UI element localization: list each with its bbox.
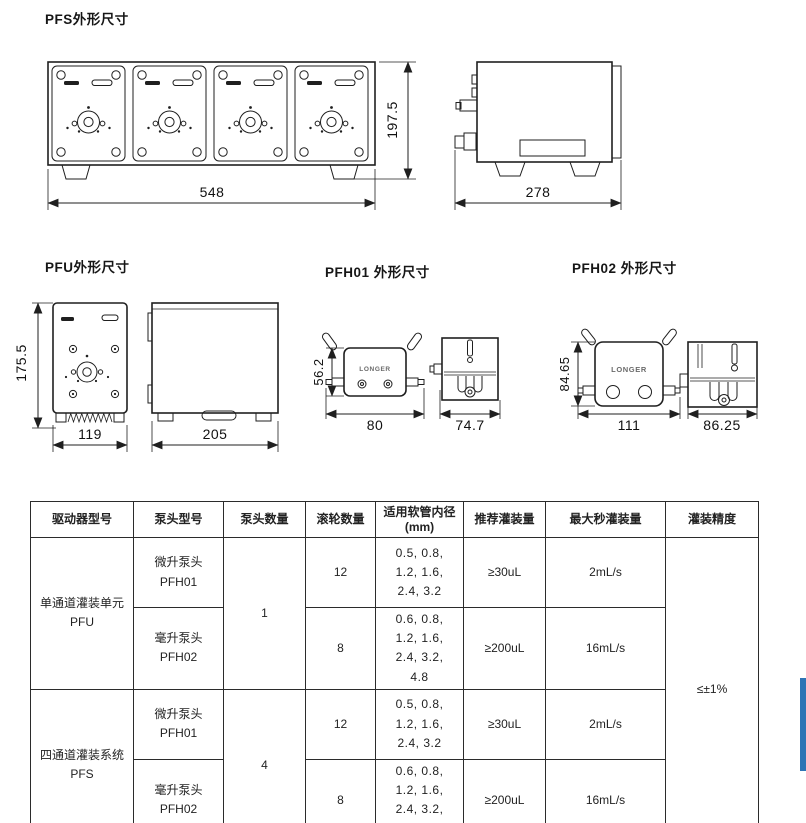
cell-head-count: 1: [224, 538, 306, 690]
cell-driver-pfu: 单通道灌装单元 PFU: [31, 538, 134, 690]
pfu-width-dim-label: 119: [78, 426, 102, 442]
pfh02-section-title: PFH02 外形尺寸: [572, 257, 677, 277]
pfu-vent-fins: [68, 414, 112, 423]
cell-max-fill-per-sec: 16mL/s: [546, 759, 666, 823]
col-header-pump-head-count: 泵头数量: [224, 502, 306, 538]
cell-tubing-id: 0.5, 0.8, 1.2, 1.6, 2.4, 3.2: [376, 538, 464, 608]
cell-rollers: 12: [306, 538, 376, 608]
datasheet-page: PFS外形尺寸: [0, 0, 806, 823]
clamp-lever-right: [661, 328, 678, 346]
cell-tubing-id: 0.5, 0.8, 1.2, 1.6, 2.4, 3.2: [376, 689, 464, 759]
pfh02-logo-text: LONGER: [611, 365, 647, 374]
clamp-lever-left: [580, 328, 597, 346]
cell-head-pfh01: 微升泵头 PFH01: [134, 538, 224, 608]
pfu-depth-dim-label: 205: [203, 426, 228, 442]
pfh01-width-dim-label: 80: [367, 417, 384, 433]
pfs-depth-dim-label: 278: [526, 184, 551, 200]
cell-recommended-fill: ≥30uL: [464, 689, 546, 759]
col-header-roller-count: 滚轮数量: [306, 502, 376, 538]
cell-max-fill-per-sec: 16mL/s: [546, 608, 666, 690]
pfu-section-title: PFU外形尺寸: [45, 256, 130, 276]
cell-head-pfh02: 毫升泵头 PFH02: [134, 608, 224, 690]
col-header-max-fill-per-sec: 最大秒灌装量: [546, 502, 666, 538]
table-header-row: 驱动器型号 泵头型号 泵头数量 滚轮数量 适用软管内径 (mm) 推荐灌装量 最…: [31, 502, 759, 538]
pfu-roller-hub: [65, 355, 109, 382]
table-row: 四通道灌装系统 PFS 微升泵头 PFH01 4 12 0.5, 0.8, 1.…: [31, 689, 759, 759]
clamp-lever-right: [406, 332, 423, 351]
pfh02-height-dim-label: 84.65: [557, 356, 572, 391]
side-slot: [520, 140, 585, 156]
cell-head-count: 4: [224, 689, 306, 823]
table-row: 毫升泵头 PFH02 8 0.6, 0.8, 1.2, 1.6, 2.4, 3.…: [31, 608, 759, 690]
pfs-side-right-foot: [570, 162, 600, 176]
pfs-side-left-foot: [495, 162, 525, 176]
col-header-tubing-id: 适用软管内径 (mm): [376, 502, 464, 538]
pfh01-logo-text: LONGER: [359, 366, 390, 373]
pfh01-tube-fittings: [326, 378, 424, 386]
cell-tubing-id: 0.6, 0.8, 1.2, 1.6, 2.4, 3.2, 4.8: [376, 608, 464, 690]
cell-recommended-fill: ≥200uL: [464, 608, 546, 690]
cell-max-fill-per-sec: 2mL/s: [546, 538, 666, 608]
col-header-fill-accuracy: 灌装精度: [666, 502, 759, 538]
col-header-pump-head-model: 泵头型号: [134, 502, 224, 538]
pfs-front-view-drawing: 548 197.5: [42, 50, 427, 228]
cell-recommended-fill: ≥30uL: [464, 538, 546, 608]
pfs-section-title: PFS外形尺寸: [45, 8, 129, 28]
pfu-height-dim-label: 175.5: [13, 344, 29, 382]
cell-recommended-fill: ≥200uL: [464, 759, 546, 823]
cell-max-fill-per-sec: 2mL/s: [546, 689, 666, 759]
cell-rollers: 8: [306, 759, 376, 823]
pfh01-section-title: PFH01 外形尺寸: [325, 261, 430, 281]
pfh02-depth-dim-label: 86.25: [703, 417, 741, 433]
pfs-side-view-drawing: 278: [445, 50, 655, 228]
pfs-left-foot: [62, 165, 90, 179]
col-header-driver-model: 驱动器型号: [31, 502, 134, 538]
pfs-right-foot: [330, 165, 358, 179]
pfh01-height-dim-label: 56.2: [311, 358, 326, 385]
cell-rollers: 8: [306, 608, 376, 690]
cell-head-pfh01: 微升泵头 PFH01: [134, 689, 224, 759]
vertical-scrollbar-thumb[interactable]: [800, 678, 806, 771]
pfh01-drawings: LONGER 56.2 80 74.7: [312, 326, 562, 446]
pfh02-tube-fittings: [578, 386, 680, 395]
cell-rollers: 12: [306, 689, 376, 759]
cell-fill-accuracy: ≤±1%: [666, 538, 759, 823]
pfs-height-dim-label: 197.5: [384, 101, 400, 139]
col-header-recommended-fill: 推荐灌装量: [464, 502, 546, 538]
pfh01-depth-dim-label: 74.7: [455, 417, 484, 433]
cell-tubing-id: 0.6, 0.8, 1.2, 1.6, 2.4, 3.2, 4.8: [376, 759, 464, 823]
pfh02-drawings: LONGER 84.65 111 86.: [560, 326, 806, 446]
pfs-width-dim-label: 548: [200, 184, 225, 200]
cell-head-pfh02: 毫升泵头 PFH02: [134, 759, 224, 823]
table-row: 单通道灌装单元 PFU 微升泵头 PFH01 1 12 0.5, 0.8, 1.…: [31, 538, 759, 608]
pfu-drawings: 175.5 119 205: [16, 290, 301, 465]
cable-gland: [464, 133, 476, 150]
cell-driver-pfs: 四通道灌装系统 PFS: [31, 689, 134, 823]
specification-table: 驱动器型号 泵头型号 泵头数量 滚轮数量 适用软管内径 (mm) 推荐灌装量 最…: [30, 501, 759, 823]
table-row: 毫升泵头 PFH02 8 0.6, 0.8, 1.2, 1.6, 2.4, 3.…: [31, 759, 759, 823]
pfh02-width-dim-label: 111: [618, 417, 641, 433]
